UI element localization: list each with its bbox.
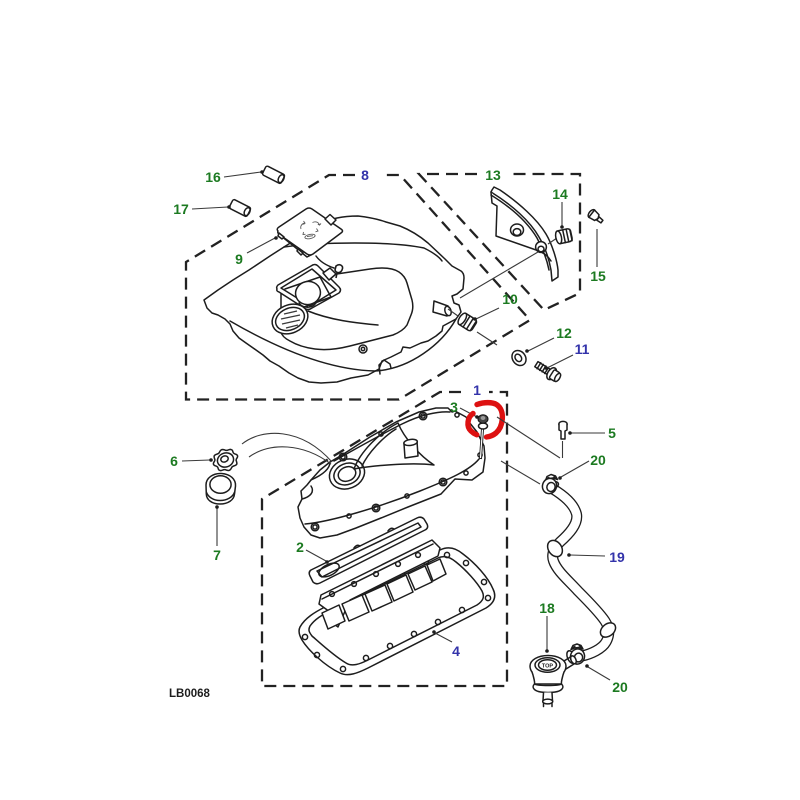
svg-text:1: 1 bbox=[473, 382, 481, 398]
svg-text:6: 6 bbox=[170, 453, 178, 469]
svg-text:LB0068: LB0068 bbox=[169, 688, 211, 700]
svg-text:7: 7 bbox=[213, 547, 221, 563]
svg-text:17: 17 bbox=[173, 201, 189, 217]
svg-text:16: 16 bbox=[205, 169, 221, 185]
svg-text:10: 10 bbox=[502, 291, 518, 307]
svg-text:15: 15 bbox=[590, 268, 606, 284]
svg-text:3: 3 bbox=[450, 399, 458, 415]
svg-text:19: 19 bbox=[609, 549, 625, 565]
svg-text:20: 20 bbox=[590, 452, 606, 468]
svg-text:18: 18 bbox=[539, 600, 555, 616]
svg-text:TOP: TOP bbox=[542, 664, 554, 670]
svg-text:2: 2 bbox=[296, 539, 304, 555]
svg-text:14: 14 bbox=[552, 186, 568, 202]
svg-text:9: 9 bbox=[235, 251, 243, 267]
svg-text:5: 5 bbox=[608, 425, 616, 441]
svg-text:12: 12 bbox=[556, 325, 572, 341]
svg-text:11: 11 bbox=[575, 341, 590, 357]
svg-text:13: 13 bbox=[485, 167, 501, 183]
svg-text:20: 20 bbox=[612, 679, 628, 695]
svg-text:8: 8 bbox=[361, 167, 369, 183]
svg-text:4: 4 bbox=[452, 643, 460, 659]
